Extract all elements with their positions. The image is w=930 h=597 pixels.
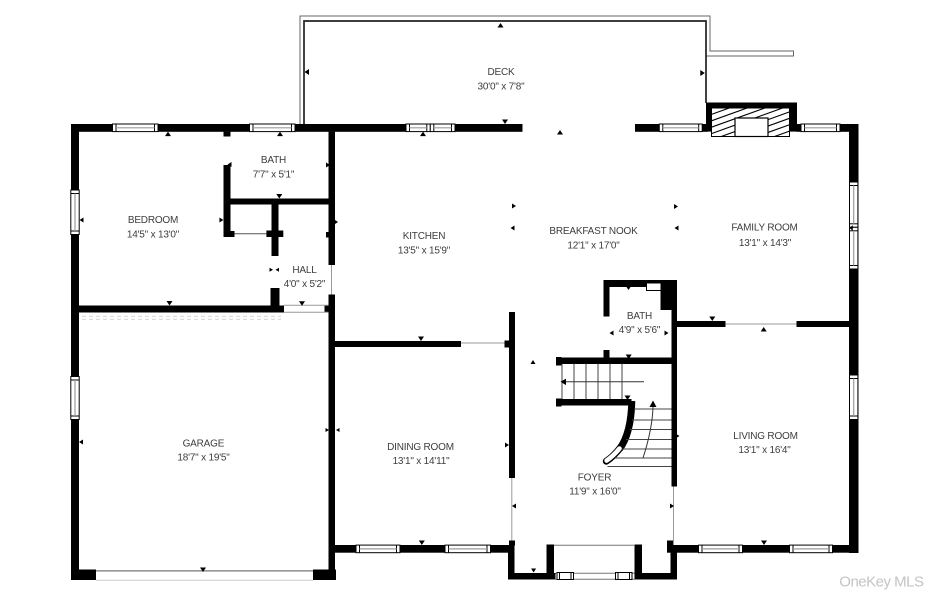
svg-text:DINING ROOM: DINING ROOM <box>387 442 454 453</box>
svg-text:4'9" x 5'6": 4'9" x 5'6" <box>619 325 661 336</box>
svg-text:13'5" x 15'9": 13'5" x 15'9" <box>398 246 451 257</box>
svg-text:13'1" x 14'11": 13'1" x 14'11" <box>393 456 451 467</box>
svg-text:BATH: BATH <box>627 311 652 322</box>
svg-text:BATH: BATH <box>261 155 286 166</box>
svg-text:30'0" x 7'8": 30'0" x 7'8" <box>478 82 526 93</box>
svg-text:KITCHEN: KITCHEN <box>403 231 446 242</box>
svg-text:DECK: DECK <box>488 67 516 78</box>
svg-text:GARAGE: GARAGE <box>183 439 225 450</box>
svg-text:4'0" x 5'2": 4'0" x 5'2" <box>284 279 326 290</box>
svg-text:BREAKFAST NOOK: BREAKFAST NOOK <box>549 226 638 237</box>
svg-text:13'1" x 16'4": 13'1" x 16'4" <box>738 445 791 456</box>
svg-text:FOYER: FOYER <box>578 473 611 484</box>
svg-text:FAMILY ROOM: FAMILY ROOM <box>731 223 797 234</box>
svg-text:BEDROOM: BEDROOM <box>128 215 178 226</box>
svg-text:OneKey MLS: OneKey MLS <box>839 574 924 591</box>
svg-text:LIVING ROOM: LIVING ROOM <box>733 431 797 442</box>
svg-text:12'1" x 17'0": 12'1" x 17'0" <box>567 241 620 252</box>
svg-text:11'9" x 16'0": 11'9" x 16'0" <box>569 486 621 497</box>
svg-text:13'1" x 14'3": 13'1" x 14'3" <box>739 238 792 249</box>
svg-text:18'7" x 19'5": 18'7" x 19'5" <box>177 453 230 464</box>
svg-text:HALL: HALL <box>292 265 317 276</box>
svg-text:14'5" x 13'0": 14'5" x 13'0" <box>127 230 180 241</box>
svg-text:7'7" x 5'1": 7'7" x 5'1" <box>253 170 295 181</box>
